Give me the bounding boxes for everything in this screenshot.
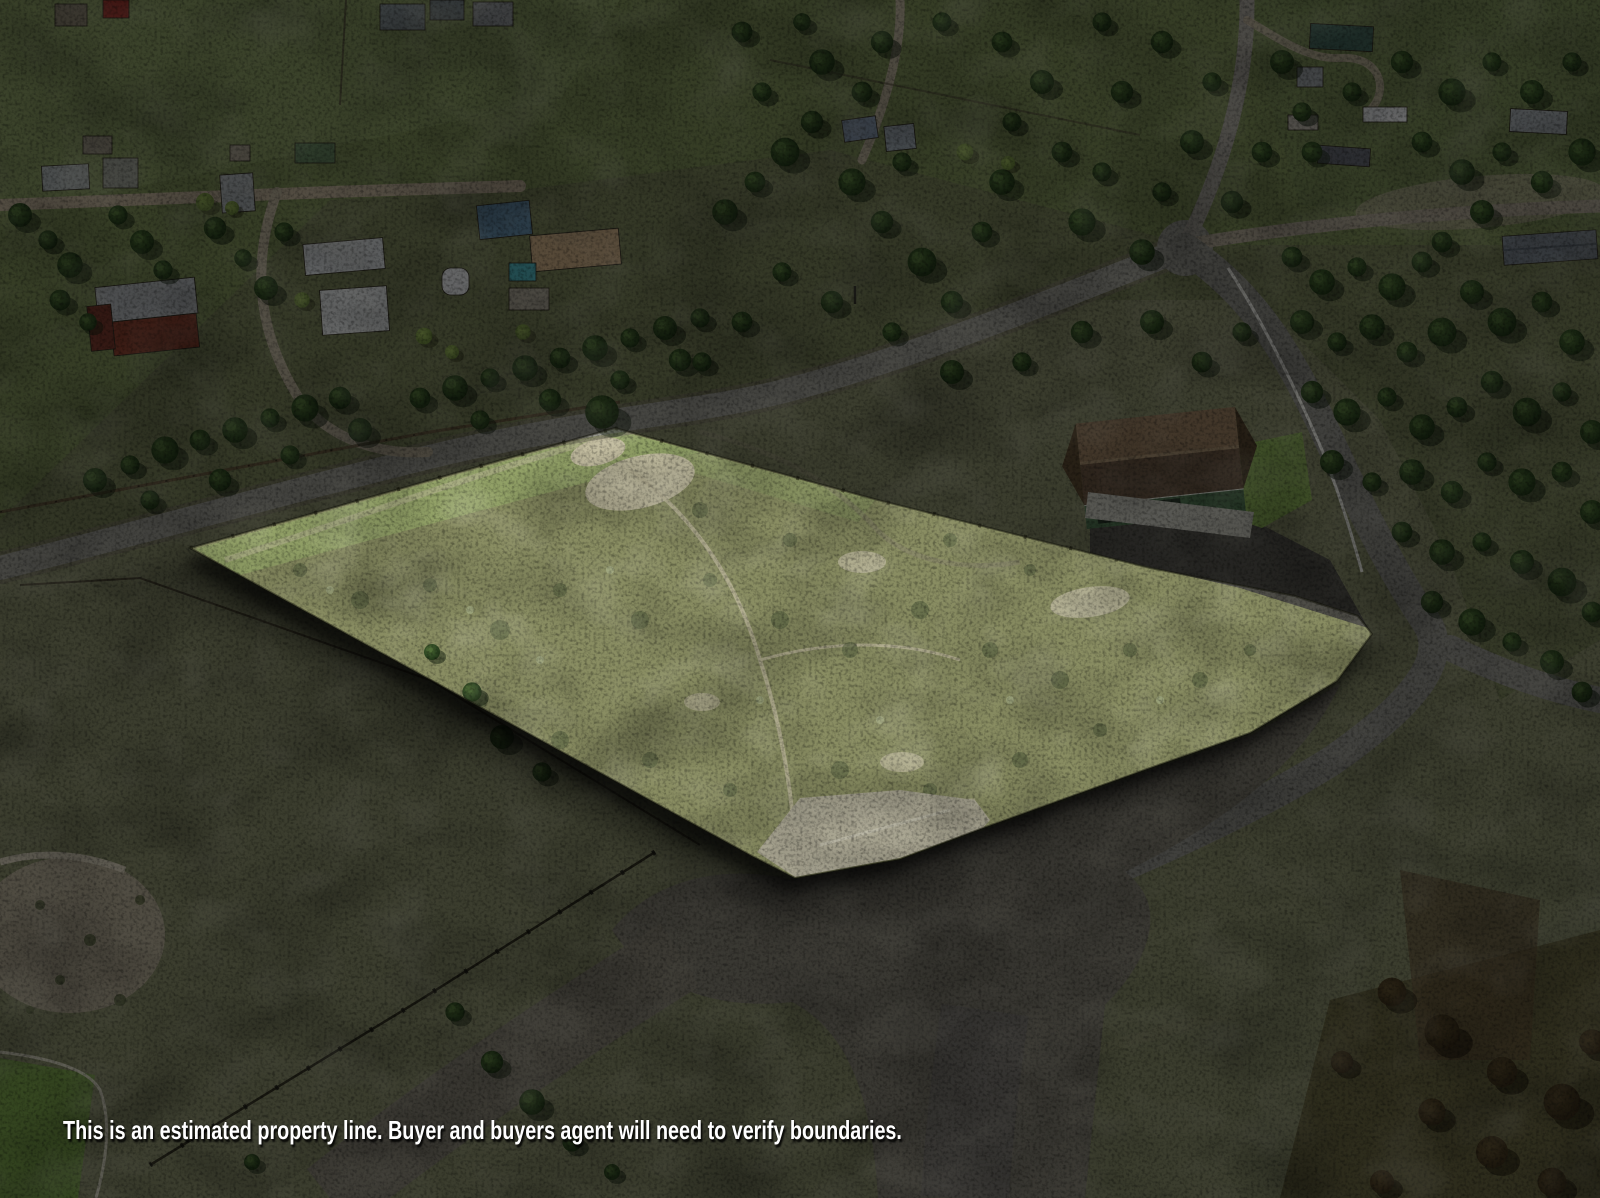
photo-canvas: [0, 0, 1600, 1198]
caption-text: This is an estimated property line. Buye…: [63, 1116, 902, 1145]
aerial-property-photo: This is an estimated property line. Buye…: [0, 0, 1600, 1198]
